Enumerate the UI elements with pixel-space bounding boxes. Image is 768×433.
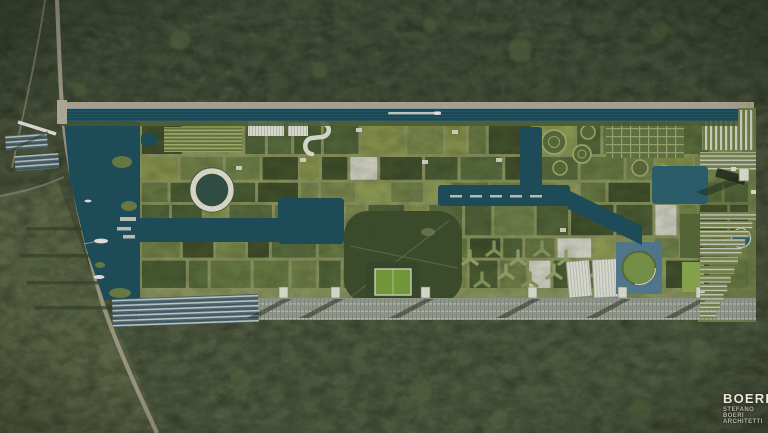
vignette xyxy=(0,0,768,433)
aerial-rendering: BOERI STEFANO BOERI ARCHITETTI xyxy=(0,0,768,433)
boeri-logo-studio-lines: STEFANO BOERI ARCHITETTI xyxy=(723,407,768,425)
boeri-logo-wordmark: BOERI xyxy=(723,392,768,405)
logo-line-3: ARCHITETTI xyxy=(723,419,768,425)
boeri-logo: BOERI STEFANO BOERI ARCHITETTI xyxy=(723,392,768,425)
masterplan-scene xyxy=(0,0,768,433)
